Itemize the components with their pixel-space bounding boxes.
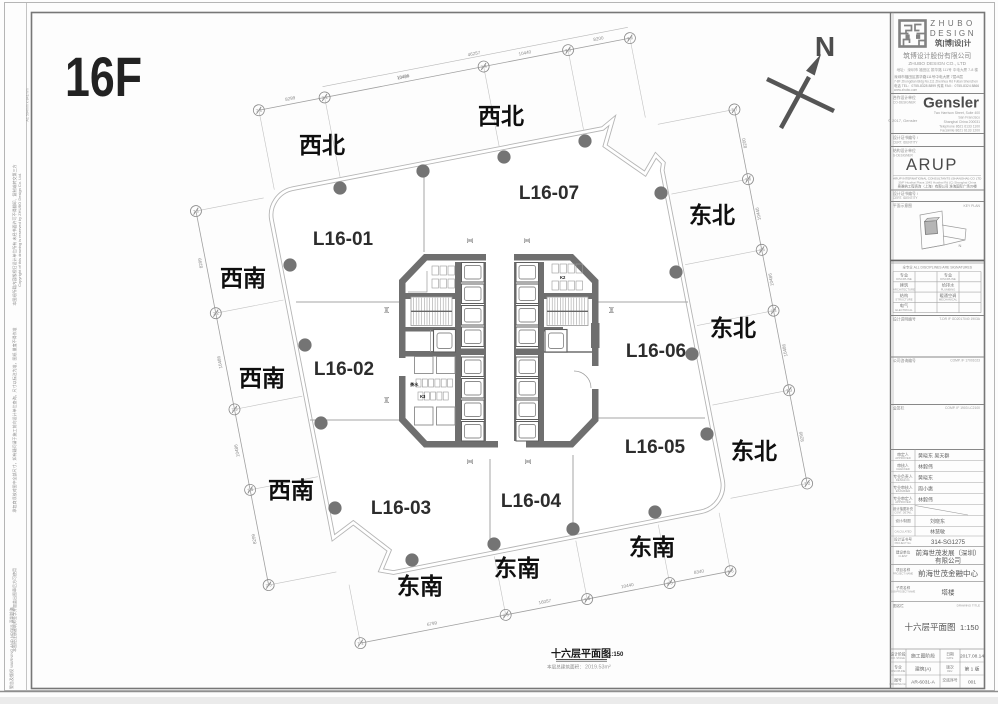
svg-text:西南: 西南 bbox=[239, 365, 285, 391]
svg-text:ELECTRICAL: ELECTRICAL bbox=[895, 308, 913, 312]
svg-text:结构设计单位: 结构设计单位 bbox=[893, 148, 916, 153]
svg-text:设计说明编号: 设计说明编号 bbox=[893, 317, 916, 322]
svg-text:地址：深圳市 福田区 振华路 111号 中电大厦 7-8 楼: 地址：深圳市 福田区 振华路 111号 中电大厦 7-8 楼 bbox=[897, 67, 979, 72]
svg-text:San Francisco: San Francisco bbox=[958, 116, 980, 120]
svg-text:东南: 东南 bbox=[397, 573, 443, 599]
svg-text:DESIGN: DESIGN bbox=[930, 29, 976, 38]
svg-text:刘晓东: 刘晓东 bbox=[930, 518, 945, 525]
svg-text:Shanghai China 200031: Shanghai China 200031 bbox=[944, 120, 981, 124]
svg-text:PROJECT No.: PROJECT No. bbox=[895, 541, 912, 545]
svg-text:ZHUBO DESIGN CO., LTD: ZHUBO DESIGN CO., LTD bbox=[908, 61, 966, 67]
svg-text:建设单位: 建设单位 bbox=[896, 550, 911, 555]
svg-text:西南: 西南 bbox=[268, 477, 314, 503]
svg-text:子项名称: 子项名称 bbox=[896, 585, 911, 590]
svg-text:设计/制图: 设计/制图 bbox=[895, 518, 911, 523]
svg-text:项目名称: 项目名称 bbox=[896, 567, 911, 572]
svg-text:CERT. IDENTITY: CERT. IDENTITY bbox=[893, 141, 918, 145]
svg-text:建筑(A): 建筑(A) bbox=[915, 666, 931, 673]
svg-text:EXAMINER: EXAMINER bbox=[896, 489, 911, 493]
svg-text:设计证书号: 设计证书号 bbox=[894, 537, 912, 542]
svg-text:DESIGN D.: DESIGN D. bbox=[896, 478, 911, 482]
svg-text:KEY PLAN: KEY PLAN bbox=[963, 204, 980, 208]
svg-text:合作设计单位: 合作设计单位 bbox=[893, 95, 916, 100]
svg-text:A1 594mm x 841mm: A1 594mm x 841mm bbox=[26, 88, 30, 121]
svg-text:AR-6031-A: AR-6031-A bbox=[911, 680, 936, 686]
svg-text:N: N bbox=[815, 31, 835, 62]
svg-text:[M]: [M] bbox=[609, 307, 614, 314]
svg-text:www.zhubo.com: www.zhubo.com bbox=[894, 88, 918, 92]
svg-text:平面示意图: 平面示意图 bbox=[893, 203, 912, 208]
svg-text:林毅伟: 林毅伟 bbox=[918, 464, 933, 471]
svg-text:STRUCTURE: STRUCTURE bbox=[895, 298, 912, 302]
svg-text:DISCIPLINE: DISCIPLINE bbox=[940, 277, 956, 281]
svg-text:CONT. DETAIL: CONT. DETAIL bbox=[894, 511, 912, 515]
svg-text:N: N bbox=[959, 243, 962, 248]
svg-text:塔楼: 塔楼 bbox=[942, 588, 956, 597]
svg-text:东南: 东南 bbox=[629, 534, 675, 560]
svg-text:设计阶段: 设计阶段 bbox=[890, 652, 905, 657]
svg-text:L16-03: L16-03 bbox=[371, 498, 431, 519]
svg-text:公司咨询编号: 公司咨询编号 bbox=[893, 358, 916, 363]
svg-text:Copyright of this drawing is r: Copyright of this drawing is reserved by… bbox=[17, 173, 22, 287]
svg-text:L16-05: L16-05 bbox=[625, 437, 686, 458]
svg-text:Gensler: Gensler bbox=[923, 95, 979, 112]
svg-text:T-DR IF GD2017040 1903A: T-DR IF GD2017040 1903A bbox=[939, 317, 980, 321]
svg-text:CHECKED: CHECKED bbox=[896, 467, 910, 471]
svg-text:有限公司: 有限公司 bbox=[935, 556, 961, 565]
svg-text:L16-07: L16-07 bbox=[519, 183, 579, 204]
svg-text:APPROVER: APPROVER bbox=[895, 500, 911, 504]
svg-text:全专业 ALL DISCIPLINES ARE SIGNAT: 全专业 ALL DISCIPLINES ARE SIGNATURES bbox=[902, 265, 972, 270]
svg-text:东北: 东北 bbox=[731, 438, 777, 464]
svg-text:设计抽图补充: 设计抽图补充 bbox=[893, 506, 914, 511]
svg-text:ARCHITECTURE: ARCHITECTURE bbox=[893, 287, 915, 291]
svg-text:[M]: [M] bbox=[524, 238, 531, 243]
svg-text:K3: K3 bbox=[420, 394, 426, 399]
svg-text:会签栏: 会签栏 bbox=[893, 406, 905, 411]
svg-text:东北: 东北 bbox=[710, 315, 756, 341]
svg-text:COMP. IF 1903 LC2100: COMP. IF 1903 LC2100 bbox=[945, 406, 980, 410]
svg-text:东北: 东北 bbox=[689, 202, 735, 228]
svg-text:日期: 日期 bbox=[946, 652, 954, 657]
svg-text:林慧敏: 林慧敏 bbox=[930, 529, 945, 536]
svg-text:DR. STAGE: DR. STAGE bbox=[891, 656, 905, 660]
svg-text:1:150: 1:150 bbox=[608, 652, 624, 658]
svg-text:L16-04: L16-04 bbox=[501, 491, 562, 512]
svg-text:十六层平面图: 十六层平面图 bbox=[904, 622, 955, 632]
svg-text:CO-DESIGNER: CO-DESIGNER bbox=[893, 101, 916, 105]
svg-text:图号: 图号 bbox=[894, 678, 902, 683]
svg-text:001: 001 bbox=[968, 680, 976, 686]
svg-text:黄晓东 吴天群: 黄晓东 吴天群 bbox=[918, 453, 949, 460]
svg-text:© 2017, Gensler: © 2017, Gensler bbox=[888, 118, 918, 123]
svg-text:本层总建筑面积：: 本层总建筑面积： bbox=[547, 664, 584, 671]
svg-text:ARUP: ARUP bbox=[906, 156, 958, 174]
svg-text:PROJECT NAME: PROJECT NAME bbox=[893, 572, 914, 576]
svg-text:筑博设计股份有限公司: 筑博设计股份有限公司 bbox=[903, 51, 971, 60]
svg-text:周小惠: 周小惠 bbox=[918, 486, 933, 493]
svg-text:版次: 版次 bbox=[946, 665, 954, 670]
svg-text:西北: 西北 bbox=[478, 103, 524, 129]
svg-text:前海世茂金融中心: 前海世茂金融中心 bbox=[918, 568, 978, 578]
svg-text:DISCIPLINE: DISCIPLINE bbox=[891, 669, 906, 673]
svg-text:7-8F Zhongdian Bldg No.111 Zhe: 7-8F Zhongdian Bldg No.111 Zhenhua Rd Fu… bbox=[894, 80, 978, 84]
svg-text:L16-01: L16-01 bbox=[313, 229, 374, 250]
svg-text:2019.53m²: 2019.53m² bbox=[585, 665, 611, 671]
svg-text:图名栏: 图名栏 bbox=[893, 603, 904, 608]
svg-text:[M]: [M] bbox=[467, 459, 474, 464]
svg-text:CERT. IDENTITY: CERT. IDENTITY bbox=[893, 196, 918, 200]
svg-text:ZHUBO: ZHUBO bbox=[930, 19, 976, 28]
svg-text:十六层平面图: 十六层平面图 bbox=[551, 647, 611, 660]
svg-text:314-SG1275: 314-SG1275 bbox=[931, 540, 966, 546]
svg-text:奥雅纳工程咨询（上海）有限公司 淮海国际广场39楼: 奥雅纳工程咨询（上海）有限公司 淮海国际广场39楼 bbox=[898, 184, 978, 189]
svg-text:专业: 专业 bbox=[894, 665, 902, 670]
svg-text:L16-06: L16-06 bbox=[626, 341, 686, 362]
svg-text:MECHANICAL: MECHANICAL bbox=[939, 298, 958, 302]
svg-text:筑|博|设|计: 筑|博|设|计 bbox=[935, 38, 972, 48]
svg-text:2017.08.14: 2017.08.14 bbox=[960, 654, 984, 660]
svg-text:林毅伟: 林毅伟 bbox=[918, 497, 933, 504]
svg-text:APPROVED: APPROVED bbox=[895, 456, 911, 460]
svg-text:CLIENT: CLIENT bbox=[898, 554, 908, 558]
svg-text:REV.: REV. bbox=[947, 669, 953, 673]
svg-text:[M]: [M] bbox=[384, 306, 389, 313]
svg-text:CALCULATED: CALCULATED bbox=[895, 530, 912, 534]
svg-text:设计证书编号 /: 设计证书编号 / bbox=[893, 135, 919, 140]
svg-text:茶水: 茶水 bbox=[409, 381, 419, 388]
svg-text:1:150: 1:150 bbox=[960, 623, 979, 632]
svg-text:DRAWING No.: DRAWING No. bbox=[889, 682, 906, 686]
svg-text:黄晓东: 黄晓东 bbox=[918, 475, 933, 482]
svg-text:[M]: [M] bbox=[525, 459, 532, 464]
svg-text:DISCIPLINE: DISCIPLINE bbox=[896, 277, 912, 281]
svg-text:COMP. IF 17001023: COMP. IF 17001023 bbox=[950, 359, 980, 363]
svg-text:东南: 东南 bbox=[494, 555, 540, 581]
svg-text:DRAWING TITLE: DRAWING TITLE bbox=[957, 604, 980, 608]
svg-text:前海世茂发展（深圳）: 前海世茂发展（深圳） bbox=[916, 548, 981, 557]
svg-text:K2: K2 bbox=[560, 275, 566, 280]
svg-text:第 1 版: 第 1 版 bbox=[965, 666, 980, 673]
svg-text:PLUMBING: PLUMBING bbox=[941, 287, 956, 291]
svg-text:[M]: [M] bbox=[467, 238, 474, 243]
svg-text:交底序号: 交底序号 bbox=[942, 678, 957, 683]
svg-text:16F: 16F bbox=[65, 45, 142, 108]
svg-text:SUB-PROJECT NAME: SUB-PROJECT NAME bbox=[891, 591, 916, 594]
svg-text:[M]: [M] bbox=[384, 396, 389, 403]
svg-text:警告及版权 WARNING AND NOTES 深圳前海: 警告及版权 WARNING AND NOTES 深圳前海 bbox=[8, 607, 14, 689]
svg-text:承包商须核对图中全部尺寸，如有疑问请于施工前向设计单位查询。: 承包商须核对图中全部尺寸，如有疑问请于施工前向设计单位查询。尺寸以标注为准，图纸… bbox=[11, 327, 17, 512]
svg-text:Two Harrison Street, Suite 400: Two Harrison Street, Suite 400 bbox=[934, 111, 980, 115]
svg-text:西南: 西南 bbox=[220, 265, 266, 291]
svg-text:Facsimile 8621 6133 1200: Facsimile 8621 6133 1200 bbox=[940, 129, 980, 133]
svg-text:西北: 西北 bbox=[299, 132, 345, 158]
svg-text:深圳市福田区振华路111号中电大厦 7层/8层: 深圳市福田区振华路111号中电大厦 7层/8层 bbox=[894, 74, 963, 79]
svg-text:施工图阶段: 施工图阶段 bbox=[911, 653, 935, 660]
svg-text:L16-02: L16-02 bbox=[314, 359, 374, 380]
svg-text:DATE: DATE bbox=[947, 656, 954, 660]
